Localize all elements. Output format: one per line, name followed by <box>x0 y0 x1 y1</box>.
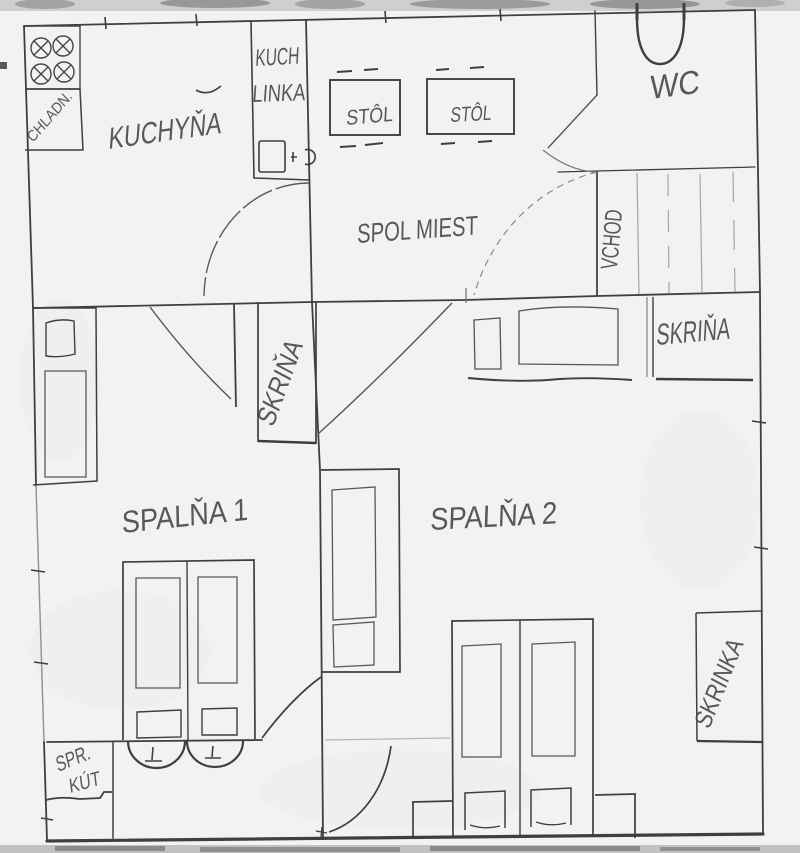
svg-text:SKRIŇA: SKRIŇA <box>656 312 732 352</box>
svg-text:SPALŇA 2: SPALŇA 2 <box>430 495 558 537</box>
svg-text:LINKA: LINKA <box>252 79 307 108</box>
svg-text:WC: WC <box>650 64 700 107</box>
svg-text:STÔL: STÔL <box>346 103 394 130</box>
svg-text:STÔL: STÔL <box>450 102 493 127</box>
svg-text:VCHOD: VCHOD <box>596 208 628 270</box>
svg-text:KUCH: KUCH <box>255 43 300 72</box>
